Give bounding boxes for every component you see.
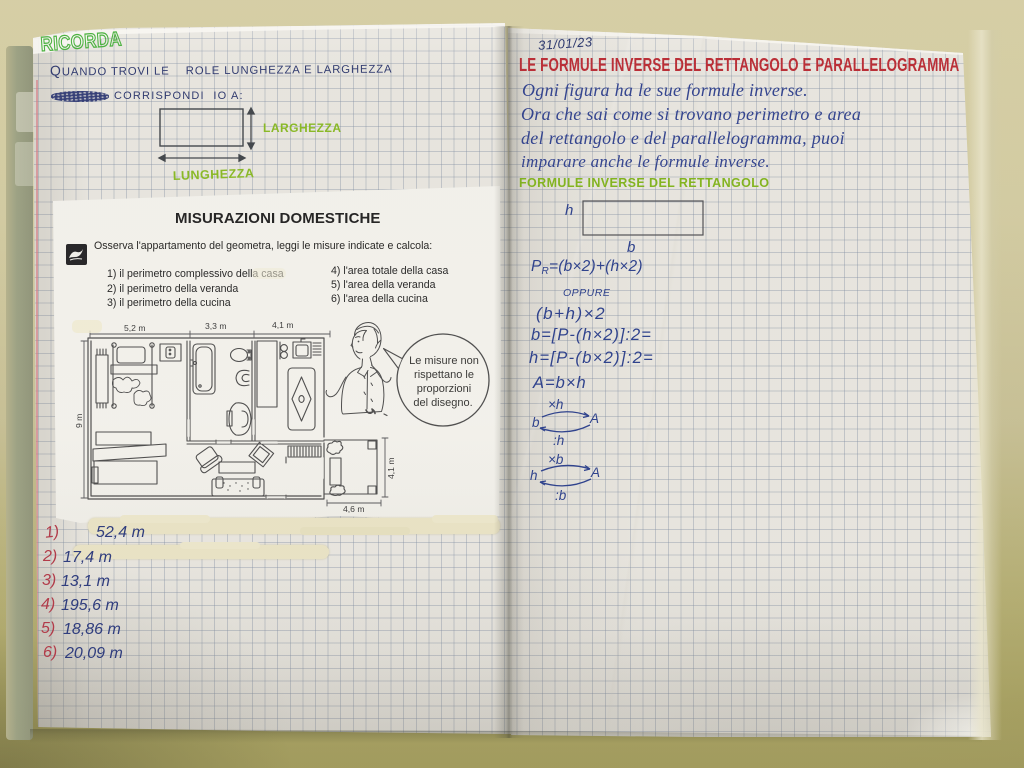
svg-text:del disegno.: del disegno. [413, 397, 472, 409]
svg-text:h: h [530, 468, 538, 483]
svg-text:4,6 m: 4,6 m [343, 504, 365, 514]
svg-text:Le misure non: Le misure non [409, 355, 479, 367]
svg-text::b: :b [555, 488, 567, 503]
svg-text:×b: ×b [548, 452, 564, 467]
svg-text:9 m: 9 m [74, 414, 84, 428]
svg-text:LARGHEZZA: LARGHEZZA [263, 121, 342, 135]
svg-text:b: b [627, 239, 635, 256]
svg-text:LUNGHEZZA: LUNGHEZZA [173, 166, 255, 183]
svg-text:b: b [532, 415, 540, 430]
svg-text:×h: ×h [548, 397, 563, 412]
svg-text:A: A [590, 465, 600, 480]
svg-text:h: h [565, 202, 573, 219]
svg-text:rispettano le: rispettano le [414, 369, 474, 381]
svg-text:5,2 m: 5,2 m [124, 323, 146, 333]
svg-text:4,1 m: 4,1 m [272, 320, 294, 330]
svg-text:3,3 m: 3,3 m [205, 321, 227, 331]
svg-text:A: A [589, 411, 599, 426]
svg-text::h: :h [553, 433, 564, 448]
svg-text:4,1 m: 4,1 m [386, 458, 396, 480]
svg-text:proporzioni: proporzioni [417, 383, 471, 395]
